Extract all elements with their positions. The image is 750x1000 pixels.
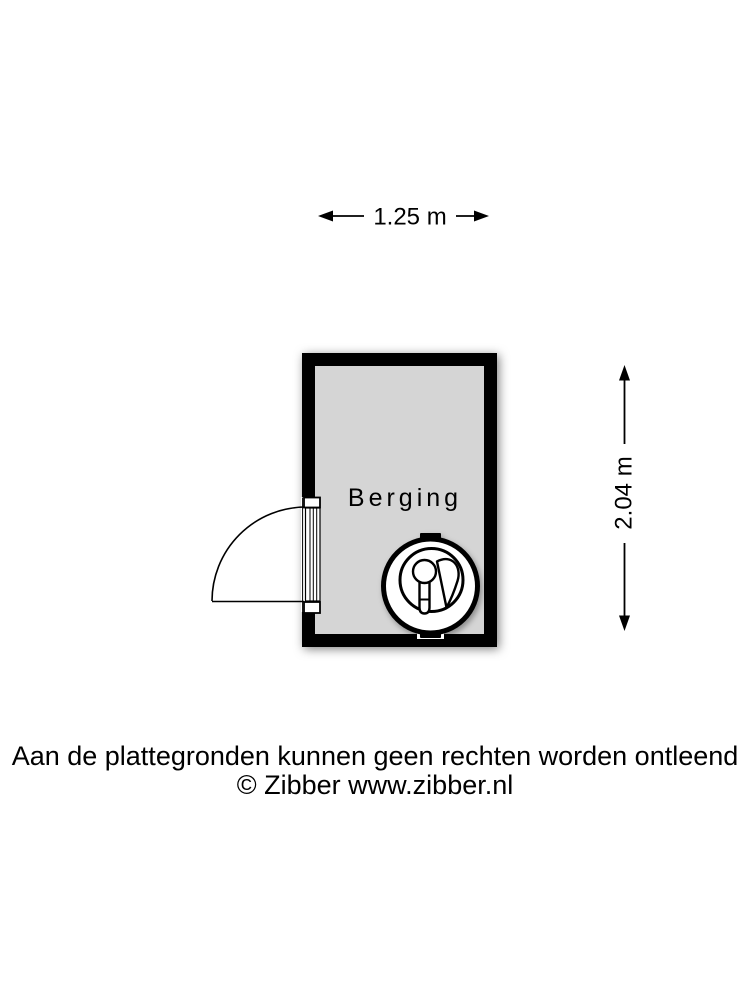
door-frame-bottom (304, 602, 320, 613)
door-leaf-closed (306, 508, 321, 601)
arrow-up-icon (619, 365, 630, 381)
floorplan-drawing: 1.25 m Berging (0, 0, 750, 1000)
floorplan-canvas: 1.25 m Berging (0, 0, 750, 1000)
door (212, 497, 320, 613)
height-dimension-label: 2.04 m (611, 456, 638, 529)
door-frame-top (304, 498, 320, 508)
arrow-down-icon (619, 616, 630, 632)
disclaimer-text: Aan de plattegronden kunnen geen rechten… (0, 742, 750, 771)
arrow-left-icon (318, 211, 333, 222)
height-dimension: 2.04 m (611, 365, 638, 631)
door-swing-arc (212, 507, 306, 601)
width-dimension: 1.25 m (318, 204, 489, 231)
footer: Aan de plattegronden kunnen geen rechten… (0, 742, 750, 800)
copyright-text: © Zibber www.zibber.nl (0, 771, 750, 800)
arrow-right-icon (474, 211, 489, 222)
width-dimension-label: 1.25 m (373, 204, 446, 231)
room-label: Berging (348, 484, 462, 512)
washer-keyhole-head (413, 560, 436, 583)
